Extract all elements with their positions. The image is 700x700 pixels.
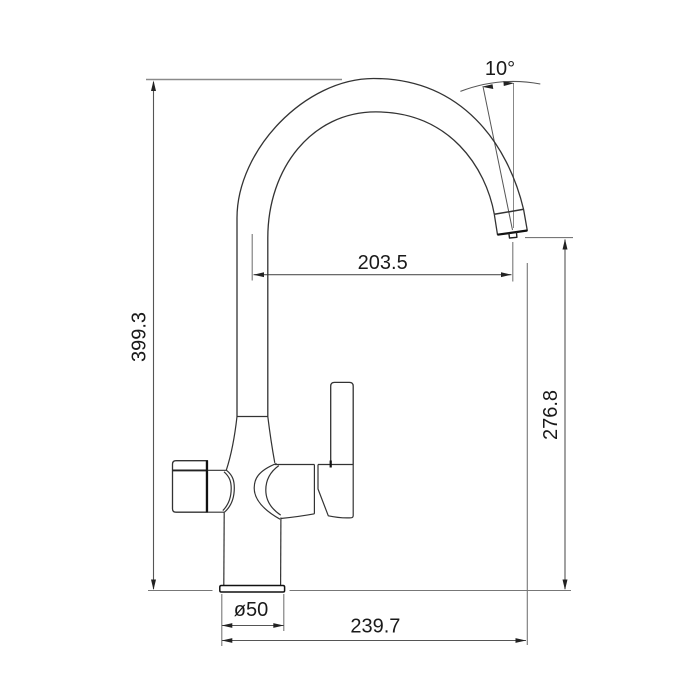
svg-text:399.3: 399.3 <box>129 312 151 362</box>
svg-text:239.7: 239.7 <box>350 616 400 638</box>
svg-text:203.5: 203.5 <box>358 252 408 274</box>
svg-text:10°: 10° <box>485 58 515 80</box>
svg-text:ø50: ø50 <box>234 599 268 621</box>
svg-text:276.8: 276.8 <box>540 390 562 440</box>
